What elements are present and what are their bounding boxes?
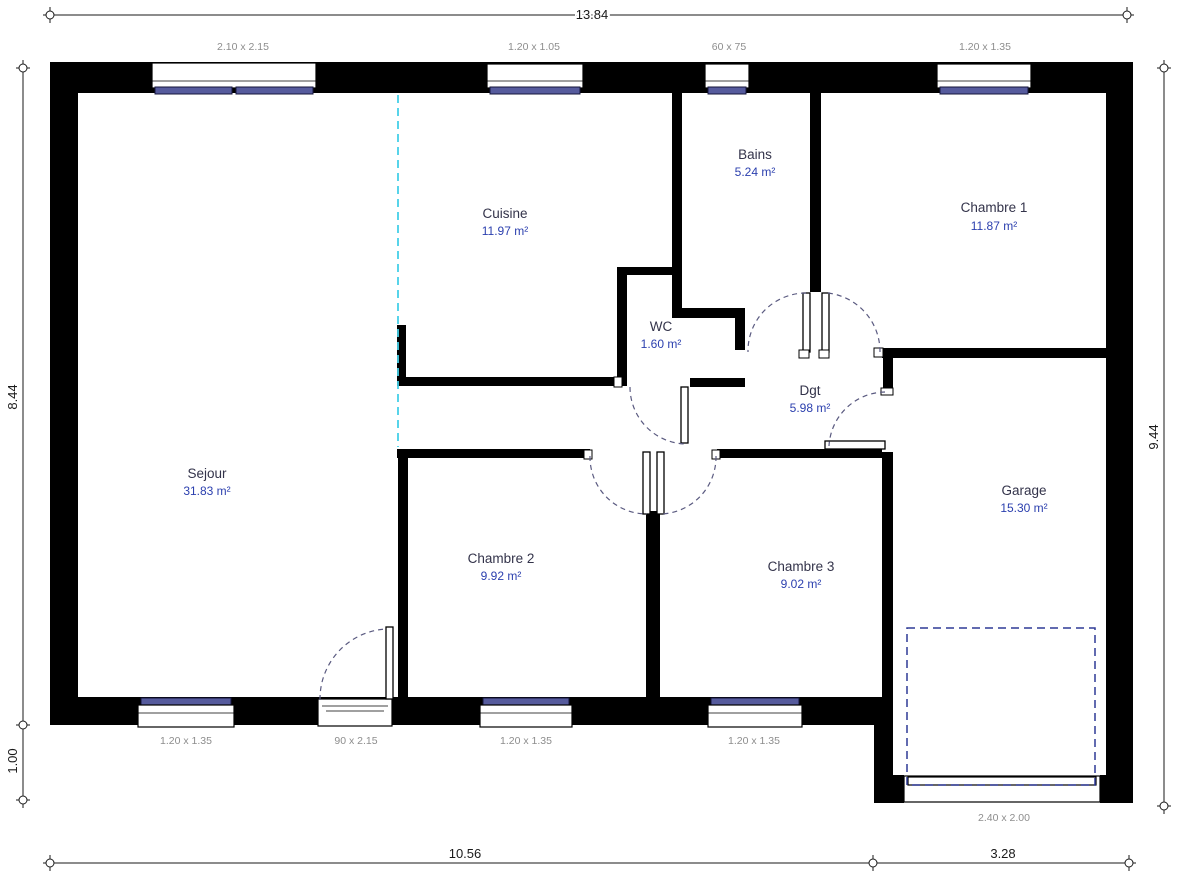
- room-area: 9.92 m²: [481, 569, 522, 583]
- room-name: Chambre 2: [468, 551, 535, 566]
- dimension-right: 9.44: [1146, 60, 1171, 814]
- window-label: 1.20 x 1.05: [508, 41, 560, 53]
- window-label: 1.20 x 1.35: [728, 735, 780, 747]
- garage-door-label: 2.40 x 2.00: [978, 812, 1030, 824]
- wall-chambre3-garage: [882, 452, 893, 697]
- room-name: Dgt: [799, 383, 820, 398]
- dim-marker: [16, 717, 30, 733]
- room-area: 11.87 m²: [971, 219, 1017, 233]
- wall-chambre2-left: [398, 453, 408, 697]
- wall-chambre2-chambre3: [646, 511, 660, 697]
- room-label-cuisine: Cuisine 11.97 m²: [482, 206, 528, 238]
- door-chambre3: [657, 450, 720, 514]
- room-area: 5.24 m²: [735, 165, 776, 179]
- room-label-chambre2: Chambre 2 9.92 m²: [468, 551, 535, 583]
- entry-door-swing: [320, 629, 386, 700]
- window-top-chambre1: 1.20 x 1.35: [937, 41, 1031, 94]
- dimension-top: 13.84: [43, 7, 1134, 23]
- dim-marker: [1157, 798, 1171, 814]
- door-chambre2: [584, 450, 650, 514]
- wall-bains-bottom: [672, 308, 745, 318]
- wall-bains-chambre1: [810, 93, 821, 292]
- wall-hall-left: [397, 449, 590, 458]
- room-label-wc: WC 1.60 m²: [641, 319, 682, 351]
- room-area: 9.02 m²: [781, 577, 822, 591]
- room-label-chambre1: Chambre 1 11.87 m²: [961, 200, 1028, 233]
- room-name: Cuisine: [482, 206, 527, 221]
- room-area: 11.97 m²: [482, 224, 528, 238]
- window-bottom-chambre3: 1.20 x 1.35: [708, 698, 802, 747]
- dim-bottom-right-value: 3.28: [990, 846, 1015, 861]
- room-area: 31.83 m²: [183, 484, 230, 498]
- dim-marker: [866, 855, 880, 871]
- wall-left: [50, 62, 78, 725]
- entry-door-leaf: [386, 627, 393, 699]
- room-name: Sejour: [187, 466, 227, 481]
- window-bottom-sejour: 1.20 x 1.35: [138, 698, 234, 747]
- wall-chambre1-garage: [882, 348, 1107, 358]
- room-label-dgt: Dgt 5.98 m²: [790, 383, 831, 415]
- wall-right: [1106, 62, 1133, 803]
- window-top-sejour: 2.10 x 2.15: [152, 41, 316, 94]
- wall-cuisine-sejour: [397, 377, 627, 386]
- wall-garage-bottom-left: [874, 775, 904, 803]
- dim-right-value: 9.44: [1146, 424, 1161, 449]
- dim-marker: [16, 792, 30, 808]
- wall-wc-left: [617, 267, 627, 385]
- wall-cuisine-bains: [672, 93, 682, 313]
- dimension-left: 8.44 1.00: [5, 60, 30, 808]
- room-area: 1.60 m²: [641, 337, 682, 351]
- room-name: WC: [650, 319, 673, 334]
- garage-door-clearance: [907, 628, 1095, 785]
- wall-hall-right: [717, 449, 882, 458]
- room-label-garage: Garage 15.30 m²: [1000, 483, 1047, 515]
- window-label: 1.20 x 1.35: [160, 735, 212, 747]
- door-wc: [614, 377, 688, 444]
- dim-marker: [43, 7, 57, 23]
- window-top-cuisine: 1.20 x 1.05: [487, 41, 583, 94]
- exterior-walls: [50, 62, 1133, 803]
- dim-marker: [1122, 855, 1136, 871]
- garage-door: 2.40 x 2.00: [904, 628, 1100, 824]
- door-bains: [748, 293, 810, 358]
- dimension-bottom: 10.56 3.28: [43, 846, 1136, 871]
- dim-left-lower-value: 1.00: [5, 748, 20, 773]
- window-label: 1.20 x 1.35: [959, 41, 1011, 53]
- dim-marker: [16, 60, 30, 76]
- dim-marker: [43, 855, 57, 871]
- room-label-bains: Bains 5.24 m²: [735, 147, 776, 179]
- entry-door: 90 x 2.15: [318, 627, 393, 747]
- room-label-chambre3: Chambre 3 9.02 m²: [768, 559, 835, 591]
- wall-wc-bottom-right: [690, 378, 745, 387]
- dim-top-value: 13.84: [576, 7, 609, 22]
- dim-left-upper-value: 8.44: [5, 384, 20, 409]
- window-label: 1.20 x 1.35: [500, 735, 552, 747]
- dim-marker: [1157, 60, 1171, 76]
- window-label: 2.10 x 2.15: [217, 41, 269, 53]
- floor-plan-drawing: 2.10 x 2.15 1.20 x 1.05 60 x 75 1.20 x 1…: [0, 0, 1184, 877]
- window-label: 60 x 75: [712, 41, 747, 53]
- dim-bottom-left-value: 10.56: [449, 846, 482, 861]
- room-area: 5.98 m²: [790, 401, 831, 415]
- wall-garage-bottom-right: [1100, 775, 1133, 803]
- room-name: Bains: [738, 147, 772, 162]
- window-top-bains: 60 x 75: [705, 41, 749, 94]
- window-bottom-chambre2: 1.20 x 1.35: [480, 698, 572, 747]
- room-name: Chambre 1: [961, 200, 1028, 215]
- wall-wc-right: [735, 308, 745, 350]
- interior-walls: [397, 93, 1107, 697]
- room-name: Chambre 3: [768, 559, 835, 574]
- door-chambre1: [819, 293, 883, 358]
- door-garage-hall: [825, 388, 893, 449]
- floor-plan: 2.10 x 2.15 1.20 x 1.05 60 x 75 1.20 x 1…: [0, 0, 1184, 877]
- room-name: Garage: [1001, 483, 1046, 498]
- dim-marker: [1120, 7, 1134, 23]
- room-area: 15.30 m²: [1000, 501, 1047, 515]
- room-label-sejour: Sejour 31.83 m²: [183, 466, 230, 498]
- room-labels: Cuisine 11.97 m² Bains 5.24 m² Chambre 1…: [183, 147, 1047, 591]
- entry-door-label: 90 x 2.15: [334, 735, 377, 747]
